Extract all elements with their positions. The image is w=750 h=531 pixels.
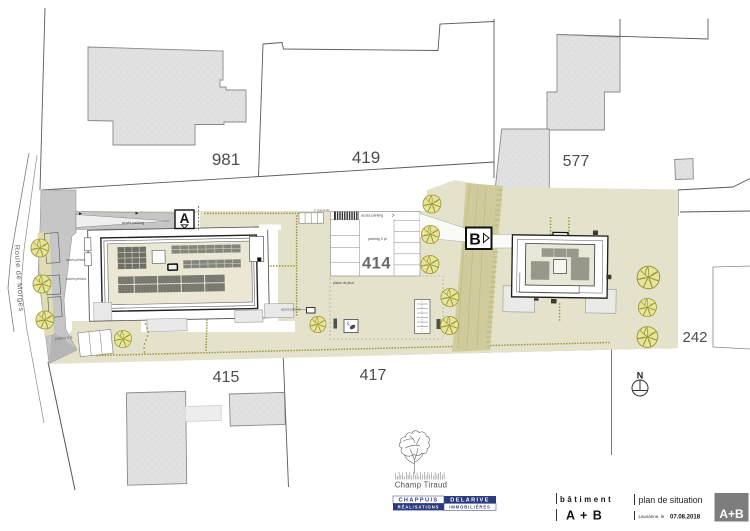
svg-text:242: 242 — [682, 329, 707, 346]
svg-text:415: 415 — [213, 369, 240, 386]
svg-text:parking 9 pl.: parking 9 pl. — [368, 237, 388, 241]
svg-text:plan de situation: plan de situation — [639, 495, 703, 505]
svg-text:2 couverts: 2 couverts — [314, 208, 330, 212]
svg-text:N: N — [637, 371, 644, 381]
svg-text:accès piétons: accès piétons — [66, 277, 87, 281]
svg-text:DELARIVE: DELARIVE — [450, 498, 489, 504]
svg-text:414: 414 — [362, 255, 391, 273]
svg-text:accès piétons: accès piétons — [66, 258, 87, 262]
svg-text:CHAPPUIS: CHAPPUIS — [398, 498, 438, 504]
svg-text:accès piétons: accès piétons — [281, 308, 301, 312]
svg-text:accès parking: accès parking — [361, 214, 383, 218]
svg-text:07.08.2018: 07.08.2018 — [670, 515, 701, 521]
svg-text:bâtiment: bâtiment — [560, 495, 613, 504]
svg-text:981: 981 — [212, 150, 240, 169]
svg-text:Champ Tiraud: Champ Tiraud — [395, 481, 448, 490]
svg-text:Lausanne, le: Lausanne, le — [639, 514, 665, 519]
svg-text:RÉALISATIONS: RÉALISATIONS — [398, 505, 440, 510]
svg-text:IMMOBILIÈRES: IMMOBILIÈRES — [449, 505, 491, 510]
svg-text:place de jeux: place de jeux — [333, 281, 354, 285]
svg-text:577: 577 — [563, 153, 590, 170]
svg-text:A+B: A+B — [719, 507, 744, 521]
svg-text:417: 417 — [360, 367, 387, 384]
svg-text:B: B — [469, 232, 481, 249]
svg-text:accès parking: accès parking — [122, 221, 144, 225]
svg-text:419: 419 — [352, 148, 380, 167]
svg-text:A + B: A + B — [566, 509, 603, 523]
svg-text:A: A — [180, 211, 190, 226]
